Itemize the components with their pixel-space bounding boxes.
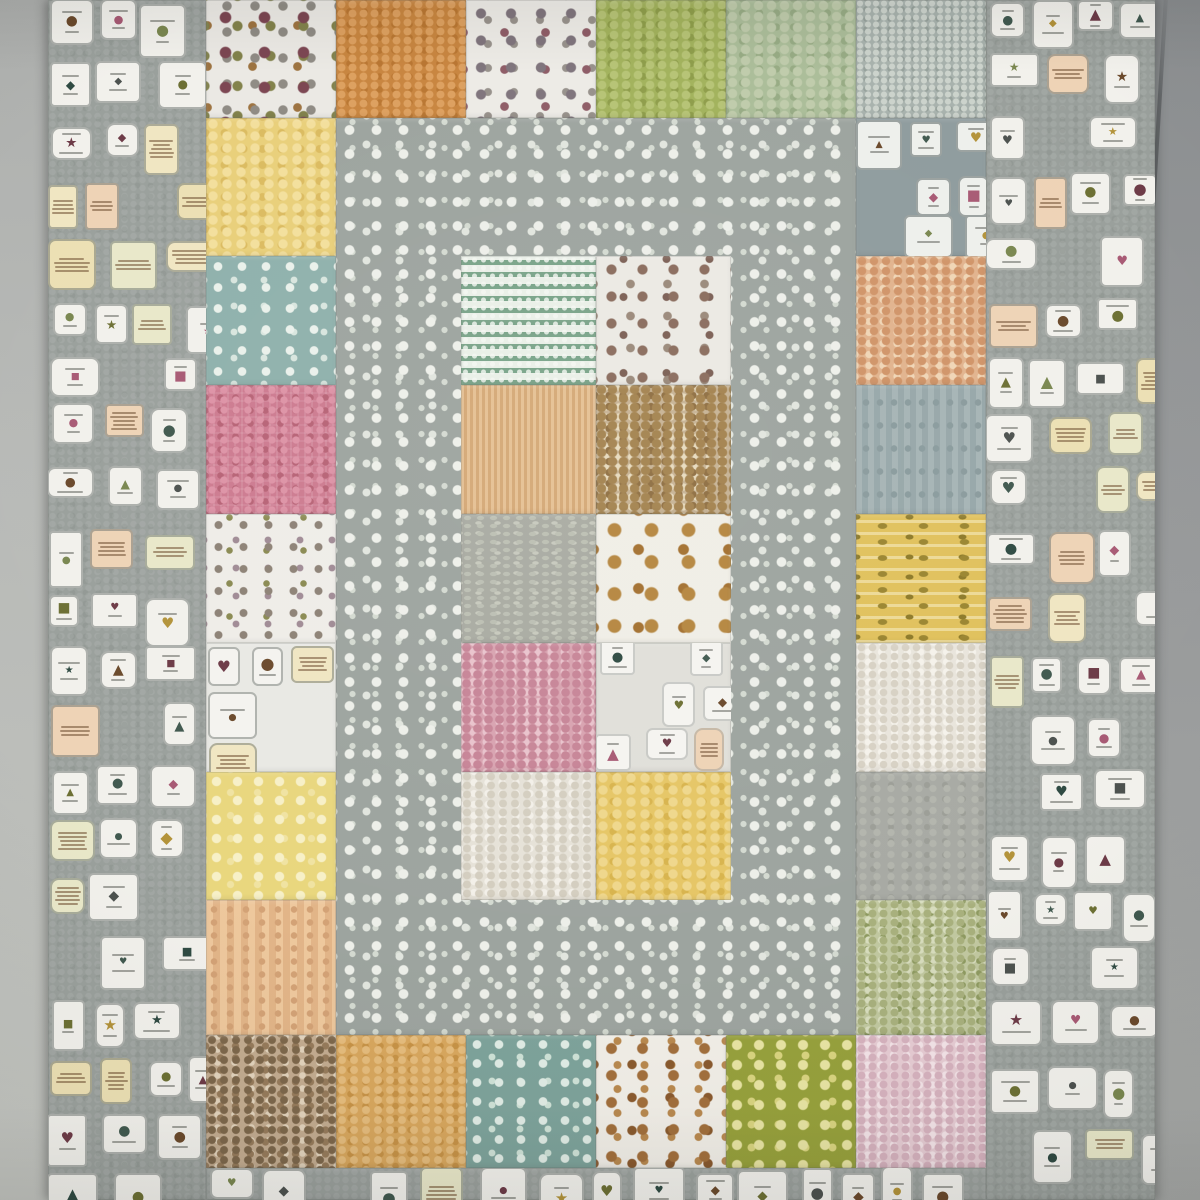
- tile-text-line: [1060, 551, 1084, 553]
- fabric-tile: ◆: [150, 819, 184, 858]
- tile-text-line: [1002, 261, 1021, 263]
- tile-text-line: [917, 241, 940, 243]
- fabric-tile: ●: [150, 408, 188, 453]
- fabric-tile: [1048, 593, 1086, 643]
- fabric-tile: [85, 183, 119, 230]
- fabric-tile: [145, 535, 195, 570]
- tile-text-line: [1110, 798, 1131, 800]
- tile-text-line: [999, 195, 1018, 197]
- tile-text-line: [1123, 1028, 1145, 1030]
- tile-text-line: [1000, 130, 1015, 132]
- tile-text-line: [980, 243, 986, 245]
- tile-motif-glyph: ■: [166, 659, 175, 669]
- fabric-tile: ◆: [50, 62, 91, 107]
- tile-motif-glyph: ●: [1005, 244, 1017, 258]
- fabric-tile: [291, 646, 334, 684]
- tile-motif-glyph: ▲: [174, 720, 184, 733]
- tile-text-line: [1000, 391, 1012, 393]
- tile-motif-glyph: ♥: [227, 1178, 236, 1189]
- tile-text-line: [57, 895, 79, 897]
- tile-text-line: [996, 621, 1024, 623]
- tile-text-line: [608, 666, 627, 668]
- tile-motif-glyph: ★: [1009, 1013, 1023, 1029]
- tile-motif-glyph: ♥: [1003, 431, 1016, 446]
- fabric-tile: [1096, 466, 1130, 513]
- tile-motif-glyph: ●: [1009, 1085, 1021, 1099]
- tile-text-line: [67, 431, 80, 433]
- tile-motif-glyph: ◆: [279, 1185, 289, 1198]
- tile-text-line: [1096, 1147, 1123, 1149]
- tile-text-line: [115, 264, 151, 266]
- tile-motif-glyph: ▲: [607, 747, 619, 762]
- fabric-tile: ♥: [100, 936, 146, 990]
- tile-text-line: [179, 959, 195, 961]
- tile-text-line: [998, 605, 1021, 607]
- tile-motif-glyph: ●: [161, 1071, 171, 1083]
- tile-motif-glyph: ●: [1047, 1151, 1057, 1163]
- tile-text-line: [107, 843, 130, 845]
- tile-motif-glyph: ★: [106, 319, 117, 332]
- tile-text-line: [996, 617, 1024, 619]
- tile-text-line: [612, 647, 623, 649]
- quilt-right-6: [856, 772, 986, 900]
- fabric-tile: ♥: [956, 121, 986, 152]
- quilt-top-1: [206, 0, 336, 118]
- tile-text-line: [108, 1076, 124, 1078]
- tile-motif-glyph: ●: [228, 713, 236, 722]
- tile-text-line: [1042, 32, 1064, 34]
- quilt-top-5: [726, 0, 856, 118]
- tile-text-line: [56, 1081, 85, 1083]
- quilt-border-bottom: ♥◆●●★♥♥◆◆●◆●●: [206, 1168, 986, 1200]
- tile-text-line: [149, 140, 173, 142]
- tile-text-line: [172, 254, 206, 256]
- fabric-tile: ■: [52, 1000, 85, 1052]
- tile-motif-glyph: ★: [65, 137, 77, 151]
- tile-text-line: [172, 1146, 188, 1148]
- fabric-tile: ■: [1141, 1134, 1155, 1185]
- quilt-center-3b: [596, 514, 731, 643]
- tile-text-line: [112, 27, 124, 29]
- quilt-top-2: [336, 0, 466, 118]
- tile-text-line: [998, 372, 1013, 374]
- tile-text-line: [1146, 616, 1155, 618]
- quilt-center-1b: [596, 256, 731, 385]
- tile-motif-glyph: ♥: [61, 1131, 74, 1146]
- fabric-tile: ♥: [208, 647, 240, 686]
- fabric-tile: ●: [1135, 591, 1155, 626]
- tile-text-line: [65, 368, 85, 370]
- fabric-tile: ●: [1103, 1069, 1134, 1119]
- tile-motif-glyph: ●: [115, 832, 123, 841]
- tile-text-line: [928, 205, 939, 207]
- tile-text-line: [1135, 199, 1146, 201]
- tile-text-line: [151, 148, 172, 150]
- tile-text-line: [1114, 86, 1130, 88]
- tile-text-line: [143, 1030, 170, 1032]
- fabric-tile: ●: [208, 692, 257, 739]
- tile-motif-glyph: ▲: [199, 1074, 206, 1085]
- quilt-top-6: [856, 0, 986, 118]
- quilt-bottom-2: [336, 1035, 466, 1168]
- quilt-center-4a: [461, 643, 596, 772]
- tile-text-line: [56, 618, 72, 620]
- tile-text-line: [298, 669, 327, 671]
- quilt-top-3: [466, 0, 596, 118]
- tile-text-line: [969, 206, 980, 208]
- fabric-tile: ◆: [703, 686, 731, 722]
- tile-text-line: [172, 250, 206, 252]
- tile-text-line: [156, 547, 184, 549]
- fabric-tile: ●: [990, 1069, 1040, 1113]
- fabric-tile: [105, 404, 144, 437]
- quilt-right-5: [856, 643, 986, 772]
- tile-text-line: [65, 31, 79, 33]
- tile-text-line: [63, 93, 79, 95]
- fabric-tile: [110, 241, 157, 291]
- tile-text-line: [1103, 493, 1122, 495]
- tile-motif-glyph: ★: [1108, 127, 1118, 138]
- tile-motif-glyph: ●: [1133, 909, 1145, 922]
- quilt-bottom-6: [856, 1035, 986, 1168]
- tile-text-line: [1045, 901, 1057, 903]
- tile-text-line: [62, 1031, 74, 1033]
- tile-motif-glyph: ■: [71, 372, 80, 381]
- tile-text-line: [108, 793, 127, 795]
- tile-motif-glyph: ●: [65, 476, 76, 489]
- tile-motif-glyph: ●: [178, 79, 188, 91]
- tile-text-line: [109, 89, 127, 91]
- fabric-tile: ♥: [48, 1114, 87, 1167]
- quilt-bottom-5: [726, 1035, 856, 1168]
- fabric-tile: [50, 820, 95, 861]
- tile-text-line: [999, 868, 1021, 870]
- quilt-right-4: [856, 514, 986, 643]
- tile-text-line: [61, 734, 90, 736]
- fabric-tile: ★: [50, 646, 89, 696]
- tile-motif-glyph: ◆: [757, 1190, 767, 1200]
- tile-text-line: [1044, 1147, 1060, 1149]
- tile-text-line: [1116, 433, 1134, 435]
- tile-text-line: [60, 678, 78, 680]
- fabric-tile: ■: [162, 936, 206, 971]
- fabric-tile: ◆: [737, 1170, 788, 1200]
- tile-motif-glyph: ▲: [67, 1187, 79, 1200]
- fabric-tile: ▲: [52, 771, 89, 815]
- fabric-tile: ●: [1110, 1005, 1155, 1037]
- tile-text-line: [103, 1035, 118, 1037]
- tile-text-line: [993, 613, 1026, 615]
- tile-text-line: [57, 887, 80, 889]
- tile-motif-glyph: ■: [58, 602, 71, 616]
- tile-text-line: [996, 675, 1019, 677]
- tile-motif-glyph: ★: [151, 1015, 163, 1028]
- tile-text-line: [299, 657, 327, 659]
- fabric-tile: ●: [987, 533, 1035, 565]
- tile-text-line: [1082, 202, 1099, 204]
- tile-text-line: [1055, 428, 1086, 430]
- background-wall-left: [0, 0, 48, 1200]
- tile-text-line: [108, 1088, 124, 1090]
- tile-text-line: [59, 258, 85, 260]
- tile-text-line: [700, 751, 718, 753]
- tile-text-line: [870, 151, 889, 153]
- tile-motif-glyph: ■: [63, 1018, 73, 1029]
- tile-text-line: [1103, 140, 1123, 142]
- tile-text-line: [1054, 623, 1080, 625]
- fabric-tile: ★: [990, 1000, 1041, 1045]
- tile-text-line: [110, 416, 139, 418]
- fabric-tile: ▲: [596, 734, 631, 771]
- tile-text-line: [98, 542, 124, 544]
- tile-text-line: [1110, 560, 1119, 562]
- quilt-right-7: [856, 900, 986, 1035]
- tile-text-line: [58, 903, 78, 905]
- tile-text-line: [1004, 958, 1017, 960]
- tile-text-line: [890, 1183, 904, 1185]
- quilt-border-right: ●◆▲▲★★♥★♥●●●♥●●▲▲■♥♥●◆●●■▲●●♥■♥●▲♥★♥●■★★…: [986, 0, 1155, 1200]
- tile-text-line: [113, 420, 136, 422]
- tile-motif-glyph: ★: [1116, 71, 1128, 85]
- tile-motif-glyph: ●: [1054, 856, 1064, 868]
- tile-text-line: [167, 793, 180, 795]
- fabric-tile: ●: [1070, 172, 1112, 215]
- tile-motif-glyph: ◆: [711, 1184, 720, 1196]
- tile-text-line: [141, 320, 163, 322]
- fabric-tile: ▲: [988, 357, 1023, 409]
- tile-motif-glyph: ●: [132, 1190, 144, 1200]
- tile-motif-glyph: ◆: [169, 778, 179, 791]
- tile-motif-glyph: ●: [114, 14, 124, 25]
- tile-text-line: [57, 491, 83, 493]
- tile-text-line: [1053, 330, 1073, 332]
- tile-text-line: [1144, 376, 1155, 378]
- tile-text-line: [1057, 436, 1085, 438]
- fabric-tile: ■: [145, 646, 196, 680]
- fabric-tile: ●: [1045, 304, 1082, 338]
- tile-text-line: [1143, 489, 1155, 491]
- tile-motif-glyph: ★: [103, 1018, 117, 1033]
- tile-text-line: [1041, 748, 1066, 750]
- fabric-tile: ■: [50, 357, 100, 398]
- quilt-center-4b: ●◆♥◆▲♥: [596, 643, 731, 772]
- tile-motif-glyph: ◆: [1049, 19, 1057, 29]
- tile-motif-glyph: ■: [1087, 667, 1100, 681]
- fabric-tile: ◆: [262, 1169, 306, 1200]
- tile-text-line: [1059, 559, 1085, 561]
- tile-motif-glyph: ●: [1057, 314, 1069, 328]
- tile-text-line: [174, 366, 187, 368]
- tile-text-line: [1039, 684, 1055, 686]
- tile-motif-glyph: ♥: [662, 738, 673, 750]
- fabric-tile: ■: [164, 358, 197, 391]
- fabric-tile: ♥: [210, 1168, 254, 1198]
- quilt-center-2b: [596, 385, 731, 514]
- quilt-bottom-4: [596, 1035, 726, 1168]
- fabric-tile: ●: [1031, 657, 1062, 693]
- tile-motif-glyph: ●: [1085, 186, 1097, 200]
- fabric-tile: ▲: [100, 651, 137, 689]
- fabric-tile: ●: [986, 238, 1037, 270]
- tile-motif-glyph: ●: [112, 778, 123, 791]
- tile-text-line: [1145, 380, 1155, 382]
- tile-text-line: [868, 136, 890, 138]
- tile-motif-glyph: ●: [893, 1187, 902, 1197]
- tile-text-line: [182, 205, 206, 207]
- fabric-tile: [1049, 417, 1092, 454]
- fabric-tile: ●: [881, 1168, 913, 1200]
- tile-text-line: [1065, 1029, 1087, 1031]
- tile-motif-glyph: ▲: [1136, 669, 1146, 682]
- tile-motif-glyph: ■: [174, 370, 187, 383]
- tile-text-line: [1052, 69, 1084, 71]
- tile-motif-glyph: ●: [174, 1130, 186, 1144]
- fabric-tile: ●: [252, 647, 282, 686]
- tile-motif-glyph: ●: [936, 1190, 949, 1200]
- tile-motif-glyph: ★: [1009, 62, 1020, 74]
- tile-text-line: [659, 752, 675, 754]
- quilt-center-2a: [461, 385, 596, 514]
- tile-motif-glyph: ♥: [654, 1186, 663, 1196]
- quilt-center-1a: [461, 256, 596, 385]
- tile-motif-glyph: ♥: [1002, 134, 1013, 146]
- patchwork-quilt: ●●●◆◆●★◆●★★■■●●●▲●●■♥♥★▲■▲▲●◆●◆◆♥■■★★●▲♥…: [48, 0, 1155, 1200]
- tile-motif-glyph: ●: [382, 1191, 395, 1200]
- tile-text-line: [55, 891, 81, 893]
- fabric-tile: [694, 728, 724, 771]
- quilt-border-left: ●●●◆◆●★◆●★★■■●●●▲●●■♥♥★▲■▲▲●◆●◆◆♥■■★★●▲♥…: [48, 0, 206, 1200]
- tile-motif-glyph: ●: [612, 651, 623, 664]
- fabric-tile: [990, 656, 1024, 708]
- fabric-tile: ♥: [990, 116, 1025, 160]
- quilt-bottom-1: [206, 1035, 336, 1168]
- tile-motif-glyph: ●: [1041, 668, 1053, 682]
- tile-text-line: [998, 908, 1012, 910]
- quilt-right-3: [856, 385, 986, 514]
- tile-text-line: [428, 1190, 455, 1192]
- tile-text-line: [1001, 325, 1026, 327]
- tile-text-line: [67, 384, 83, 386]
- tile-motif-glyph: ●: [499, 1186, 507, 1195]
- tile-text-line: [998, 329, 1029, 331]
- fabric-tile: [166, 241, 206, 273]
- fabric-tile: ◆: [696, 1173, 734, 1200]
- fabric-tile: ◆: [106, 123, 139, 157]
- tile-text-line: [712, 710, 731, 712]
- fabric-tile: ◆: [841, 1173, 875, 1200]
- fabric-tile: [988, 597, 1032, 632]
- tile-text-line: [701, 666, 711, 668]
- tile-text-line: [63, 325, 77, 327]
- tile-text-line: [149, 152, 174, 154]
- fabric-tile: ♥: [1073, 891, 1113, 932]
- tile-text-line: [649, 1182, 668, 1184]
- tile-text-line: [58, 832, 87, 834]
- fabric-tile: ●: [96, 765, 139, 805]
- tile-text-line: [62, 800, 79, 802]
- fabric-tile: ●: [1041, 836, 1077, 888]
- tile-motif-glyph: ♥: [1070, 1014, 1081, 1027]
- tile-text-line: [100, 546, 124, 548]
- fabric-tile: [1049, 532, 1095, 584]
- tile-text-line: [52, 212, 74, 214]
- fabric-tile: ★: [539, 1173, 584, 1200]
- fabric-tile: ●: [370, 1171, 408, 1200]
- fabric-tile: ♥: [990, 177, 1027, 225]
- tile-text-line: [1141, 384, 1155, 386]
- tile-text-line: [153, 144, 170, 146]
- tile-text-line: [182, 197, 206, 199]
- tile-text-line: [1042, 198, 1059, 200]
- tile-text-line: [700, 747, 718, 749]
- fabric-tile: ●: [600, 643, 635, 675]
- fabric-tile: [51, 705, 100, 757]
- tile-text-line: [1132, 684, 1150, 686]
- fabric-tile: [989, 304, 1038, 349]
- tile-text-line: [918, 147, 933, 149]
- tile-text-line: [1050, 801, 1073, 803]
- quilt-left-6: [206, 772, 336, 900]
- tile-text-line: [302, 665, 324, 667]
- tile-text-line: [994, 679, 1019, 681]
- tile-text-line: [1054, 611, 1080, 613]
- tile-motif-glyph: ♥: [110, 603, 119, 613]
- fabric-tile: [100, 1058, 132, 1105]
- fabric-tile: ●: [480, 1168, 527, 1200]
- fabric-tile: ●: [149, 1061, 184, 1097]
- tile-text-line: [220, 759, 246, 761]
- tile-text-line: [1056, 432, 1086, 434]
- tile-text-line: [1141, 388, 1155, 390]
- fabric-tile: ●: [157, 1114, 202, 1161]
- tile-text-line: [706, 1180, 725, 1182]
- quilt-bottom-3: [466, 1035, 596, 1168]
- fabric-tile: ♥: [986, 414, 1033, 463]
- tile-text-line: [998, 687, 1016, 689]
- fabric-tile: ♥: [91, 593, 138, 628]
- fabric-tile: ▲: [1119, 657, 1155, 693]
- fabric-tile: ★: [95, 304, 128, 344]
- tile-text-line: [58, 662, 79, 664]
- fabric-tile: ◆: [1032, 0, 1074, 49]
- tile-text-line: [153, 551, 188, 553]
- tile-text-line: [1142, 481, 1155, 483]
- fabric-tile: ◆: [88, 873, 139, 921]
- tile-motif-glyph: ▲: [113, 663, 124, 677]
- tile-motif-glyph: ◆: [1109, 545, 1119, 558]
- tile-motif-glyph: ◆: [66, 79, 75, 91]
- tile-text-line: [996, 321, 1032, 323]
- tile-motif-glyph: ◆: [160, 830, 172, 846]
- fabric-tile: ●: [50, 0, 93, 45]
- tile-text-line: [140, 324, 165, 326]
- tile-text-line: [1060, 563, 1085, 565]
- tile-motif-glyph: ■: [967, 189, 981, 204]
- fabric-tile: ♥: [987, 890, 1022, 940]
- tile-text-line: [167, 480, 189, 482]
- fabric-tile: ●: [49, 531, 83, 588]
- tile-text-line: [161, 848, 172, 850]
- fabric-tile: ●: [1097, 298, 1138, 330]
- tile-text-line: [60, 840, 85, 842]
- fabric-tile: [1034, 177, 1067, 229]
- tile-motif-glyph: ●: [1129, 1014, 1140, 1026]
- quilt-left-2: [206, 256, 336, 385]
- tile-text-line: [118, 260, 149, 262]
- tile-text-line: [156, 41, 169, 43]
- fabric-tile: ●: [114, 1173, 162, 1200]
- tile-text-line: [1057, 440, 1083, 442]
